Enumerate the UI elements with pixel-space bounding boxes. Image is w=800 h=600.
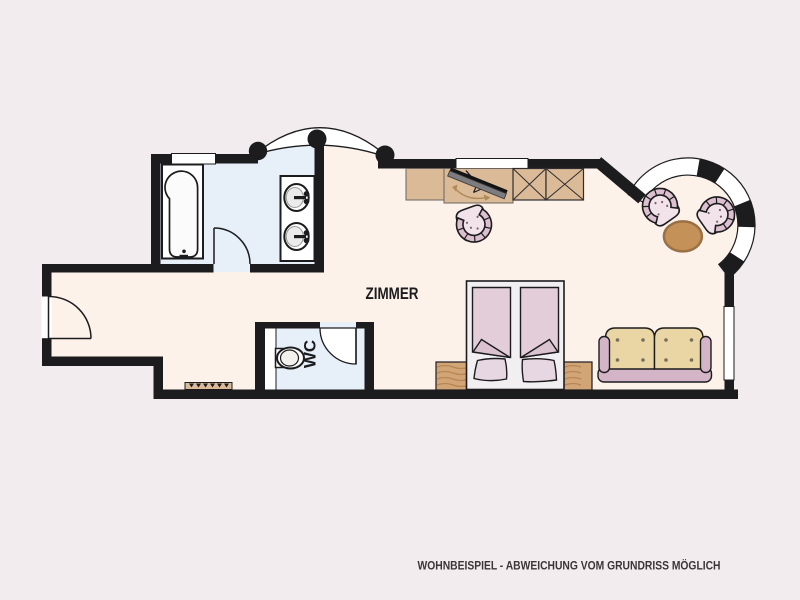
svg-text:WOHNBEISPIEL - ABWEICHUNG VOM: WOHNBEISPIEL - ABWEICHUNG VOM GRUNDRISS … [418, 558, 721, 573]
svg-text:ZIMMER: ZIMMER [366, 285, 419, 303]
svg-text:WC: WC [301, 340, 320, 368]
